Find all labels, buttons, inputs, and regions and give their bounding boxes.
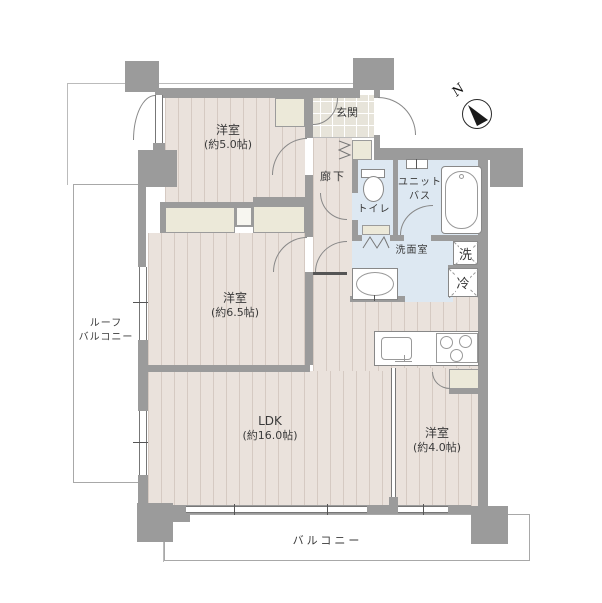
room-label-genkan: 玄関 [327, 106, 367, 121]
room-label-senmenshitsu: 洗面室 [388, 244, 436, 258]
pillar [353, 58, 394, 90]
duct-box [235, 206, 253, 227]
room-size: (約4.0帖) [377, 441, 497, 456]
washroom-cabinet [362, 225, 390, 235]
wall-segment [305, 90, 313, 138]
room-label-yoshitsu4: 洋室 (約4.0帖) [377, 425, 497, 456]
wall-segment [160, 202, 165, 233]
kitchen-sink [381, 337, 412, 360]
wall-segment [148, 365, 310, 372]
wall-segment [138, 150, 177, 187]
room-name: 洋室 [175, 290, 295, 306]
wall-segment [138, 187, 146, 267]
wall-segment [352, 235, 362, 241]
basin-faucet [374, 295, 375, 301]
room-name: バス [392, 190, 448, 204]
north-label: N [449, 81, 467, 100]
wall-segment [390, 235, 404, 241]
wash-basin [356, 272, 394, 296]
label-balcony: バルコニー [285, 534, 370, 549]
room-name: LDK [210, 413, 330, 429]
window-tick [423, 504, 424, 515]
burner-icon [459, 335, 472, 348]
room-size: (約16.0帖) [210, 429, 330, 444]
folding-door-icon [362, 236, 390, 249]
wall-segment [160, 202, 305, 207]
wall-segment [305, 272, 313, 365]
room-label-yoshitsu5: 洋室 (約5.0帖) [168, 122, 288, 153]
label-roof-balcony: ルーフ バルコニー [68, 317, 144, 344]
label-line: バルコニー [68, 331, 144, 345]
wall-segment [374, 148, 523, 160]
wall-segment [253, 197, 305, 202]
shoe-cabinet [352, 140, 372, 160]
room-name: ユニット [392, 176, 448, 190]
wall-segment [389, 497, 398, 506]
burner-icon [450, 349, 463, 362]
floor-plan: 洗 冷 N 洋室 (約5.0帖) 玄関 廊下 トイレ ユニット バス 洗面室 洋… [0, 0, 602, 603]
window-tick [133, 442, 148, 443]
eaves-line [67, 83, 68, 185]
room-size: (約5.0帖) [168, 138, 288, 153]
wall-segment [313, 272, 347, 275]
bath-window [406, 159, 428, 169]
pillar [471, 506, 508, 544]
eaves-line [67, 83, 353, 84]
bathtub-inner [445, 171, 478, 229]
window [139, 411, 147, 475]
wall-segment [352, 160, 358, 193]
window-tick [416, 159, 417, 169]
room-size: (約6.5帖) [175, 306, 295, 321]
sink-faucet [404, 355, 405, 362]
room-name: 洋室 [168, 122, 288, 138]
window-swing-arc [133, 95, 155, 140]
window-tick [327, 504, 328, 515]
entry-step-line [313, 137, 374, 138]
pillar [125, 61, 159, 92]
wall-segment [374, 135, 380, 148]
fridge-label: 冷 [456, 273, 469, 292]
fridge-space: 冷 [448, 268, 478, 297]
room-label-unitbath: ユニット バス [392, 176, 448, 203]
toilet-bowl [363, 176, 384, 202]
bathtub-drain [459, 174, 464, 179]
wall-segment [305, 203, 313, 237]
washer-space: 洗 [453, 241, 478, 265]
balcony-edge-line [163, 542, 164, 562]
burner-icon [440, 336, 453, 349]
wall-segment [449, 388, 488, 394]
folding-door-icon [338, 140, 352, 160]
pillar [137, 503, 173, 542]
wall-segment [138, 340, 148, 411]
entry-door-swing-arc [378, 97, 416, 135]
wall-segment [490, 160, 523, 187]
wall-segment [153, 143, 165, 150]
room-name: 洋室 [377, 425, 497, 441]
room-label-ldk: LDK (約16.0帖) [210, 413, 330, 444]
wall-segment [138, 475, 148, 505]
wall-segment [173, 512, 190, 522]
window-tick [133, 302, 148, 303]
window [155, 95, 163, 143]
washer-label: 洗 [459, 244, 472, 263]
room-label-toilet: トイレ [352, 203, 396, 217]
room-label-rouka: 廊下 [314, 170, 352, 185]
window-tick [234, 504, 235, 515]
closet [165, 207, 235, 233]
label-line: ルーフ [68, 317, 144, 331]
compass-arrow-icon [462, 99, 492, 129]
sliding-window [186, 506, 367, 513]
wall-segment [155, 88, 360, 98]
room-label-yoshitsu65: 洋室 (約6.5帖) [175, 290, 295, 321]
